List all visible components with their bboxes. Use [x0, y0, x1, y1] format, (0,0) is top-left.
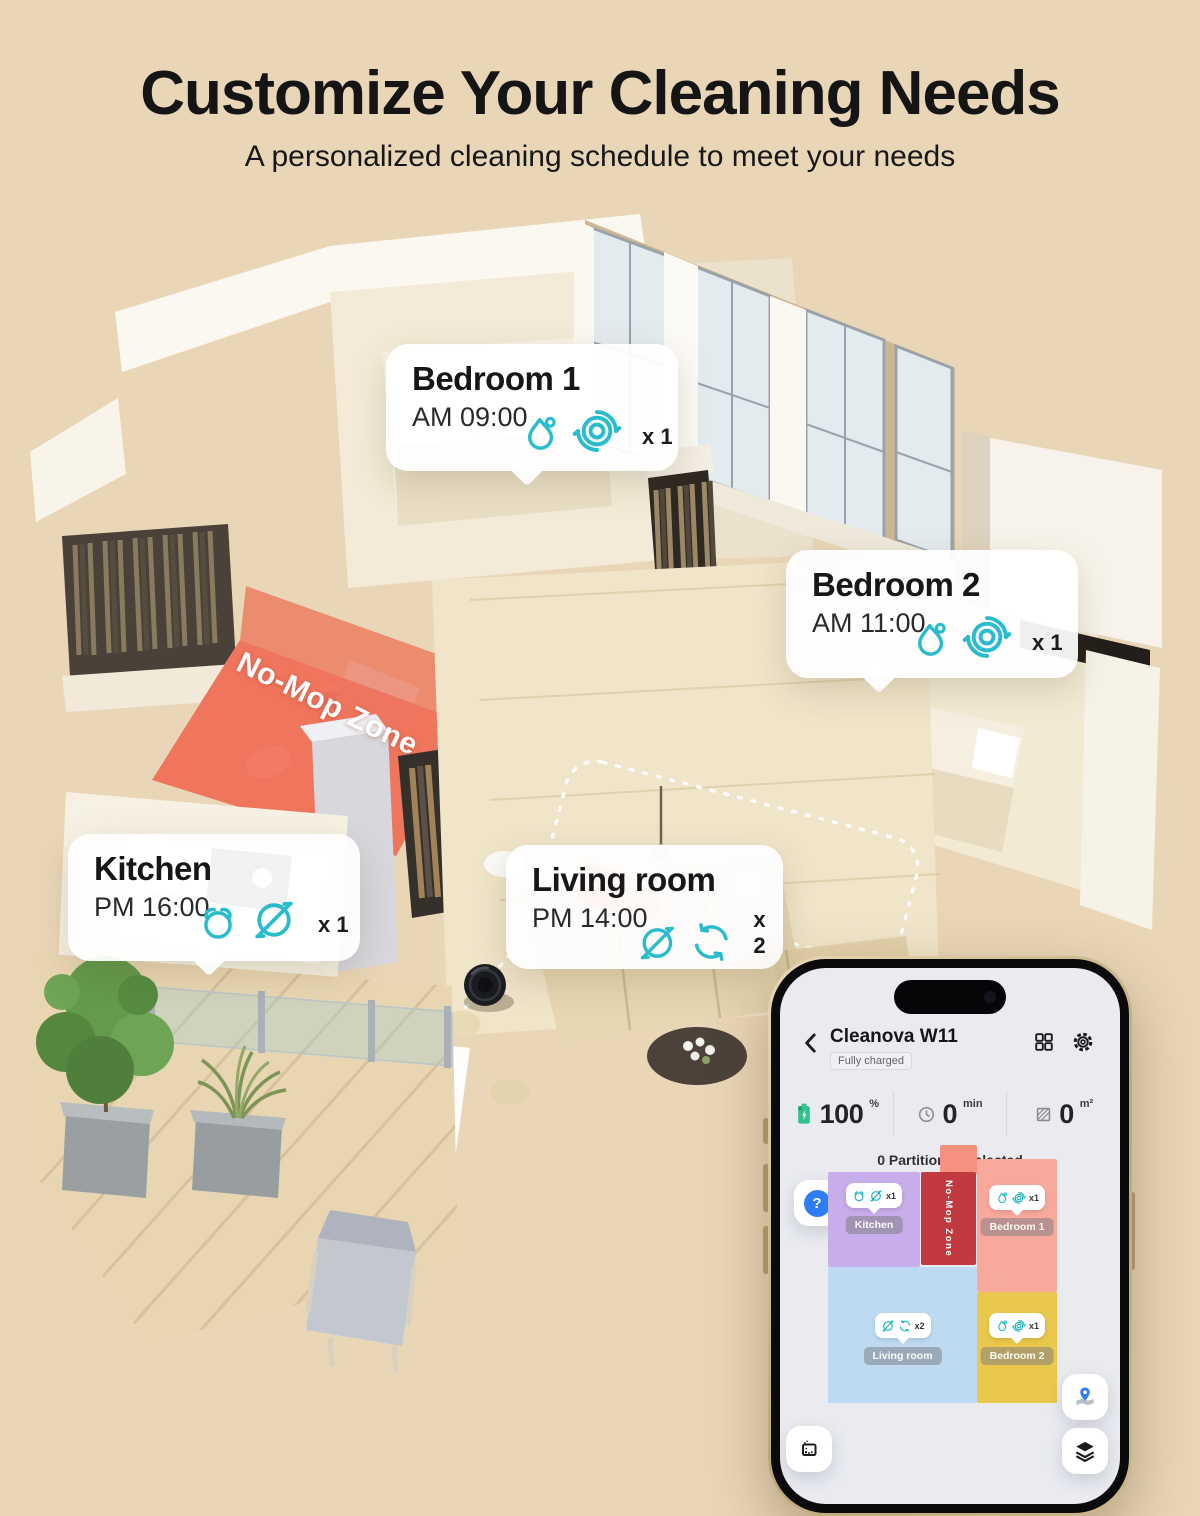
- map-stub: [940, 1145, 977, 1175]
- water-drop-icon: [995, 1191, 1009, 1205]
- room-label: Kitchen: [846, 1216, 903, 1234]
- room-time: AM 09:00: [412, 402, 528, 433]
- schedule-card-bedroom2: Bedroom 2 AM 11:00 x 1: [786, 550, 1078, 678]
- schedule-card-bedroom1: Bedroom 1 AM 09:00 x 1: [386, 344, 678, 471]
- water-drop-icon: [908, 618, 952, 662]
- room-time: PM 16:00: [94, 892, 210, 923]
- page-title: Customize Your Cleaning Needs: [0, 58, 1200, 129]
- room-badge: x1: [989, 1185, 1045, 1210]
- phone-mockup: Cleanova W11 Fully charged: [768, 956, 1132, 1516]
- room-label: Bedroom 2: [981, 1347, 1054, 1365]
- map-room-bedroom1[interactable]: x1 Bedroom 1: [977, 1159, 1057, 1292]
- no-mop-icon: [250, 896, 298, 944]
- room-label: Living room: [863, 1347, 941, 1365]
- marketing-page: { "page": { "title": "Customize Your Cle…: [0, 0, 1200, 1500]
- zone-select-button[interactable]: [786, 1426, 832, 1472]
- layers-icon: [1072, 1438, 1098, 1464]
- clean-count: x 1: [308, 912, 349, 944]
- spin-icon: [897, 1319, 911, 1333]
- room-label: Bedroom 1: [981, 1218, 1054, 1236]
- room-time: PM 14:00: [532, 903, 648, 934]
- clean-count: x 1: [1022, 630, 1063, 662]
- map-locate-button[interactable]: [1062, 1374, 1108, 1420]
- spin-icon: [689, 919, 734, 965]
- mop-disc-icon: [572, 406, 622, 456]
- mop-disc-icon: [1012, 1319, 1026, 1333]
- clean-count: x 1: [632, 424, 673, 456]
- mop-disc-icon: [1012, 1191, 1026, 1205]
- mop-disc-icon: [962, 612, 1012, 662]
- app-map: x1 Kitchen No-Mop Zone x1 Bedroom 1: [780, 968, 1120, 1504]
- schedule-card-living: Living room PM 14:00 x 2: [506, 845, 783, 969]
- room-name: Bedroom 1: [412, 360, 580, 398]
- alarm-icon: [196, 900, 240, 944]
- room-badge: x2: [874, 1313, 930, 1338]
- phone-bezel: Cleanova W11 Fully charged: [771, 959, 1129, 1513]
- alarm-icon: [852, 1189, 866, 1203]
- map-room-living[interactable]: x2 Living room: [828, 1267, 977, 1403]
- room-name: Bedroom 2: [812, 566, 980, 604]
- map-layers-button[interactable]: [1062, 1428, 1108, 1474]
- deck-chair: [306, 1210, 416, 1372]
- water-drop-icon: [995, 1319, 1009, 1333]
- room-badge: x1: [989, 1313, 1045, 1338]
- no-mop-icon: [869, 1189, 883, 1203]
- clean-count: x 2: [743, 907, 783, 965]
- app-screen: Cleanova W11 Fully charged: [780, 968, 1120, 1504]
- zone-select-icon: [797, 1437, 821, 1461]
- schedule-card-kitchen: Kitchen PM 16:00 x 1: [68, 834, 360, 961]
- map-no-mop-zone: No-Mop Zone: [921, 1172, 976, 1265]
- no-mop-icon: [880, 1319, 894, 1333]
- no-mop-icon: [636, 921, 679, 965]
- water-drop-icon: [518, 412, 562, 456]
- map-room-kitchen[interactable]: x1 Kitchen: [828, 1172, 920, 1267]
- no-mop-zone-label: No-Mop Zone: [943, 1180, 954, 1257]
- room-badge: x1: [846, 1183, 902, 1208]
- room-name: Living room: [532, 861, 715, 899]
- page-subtitle: A personalized cleaning schedule to meet…: [0, 140, 1200, 174]
- room-name: Kitchen: [94, 850, 212, 888]
- map-pin-icon: [1072, 1384, 1098, 1410]
- map-room-bedroom2[interactable]: x1 Bedroom 2: [977, 1292, 1057, 1403]
